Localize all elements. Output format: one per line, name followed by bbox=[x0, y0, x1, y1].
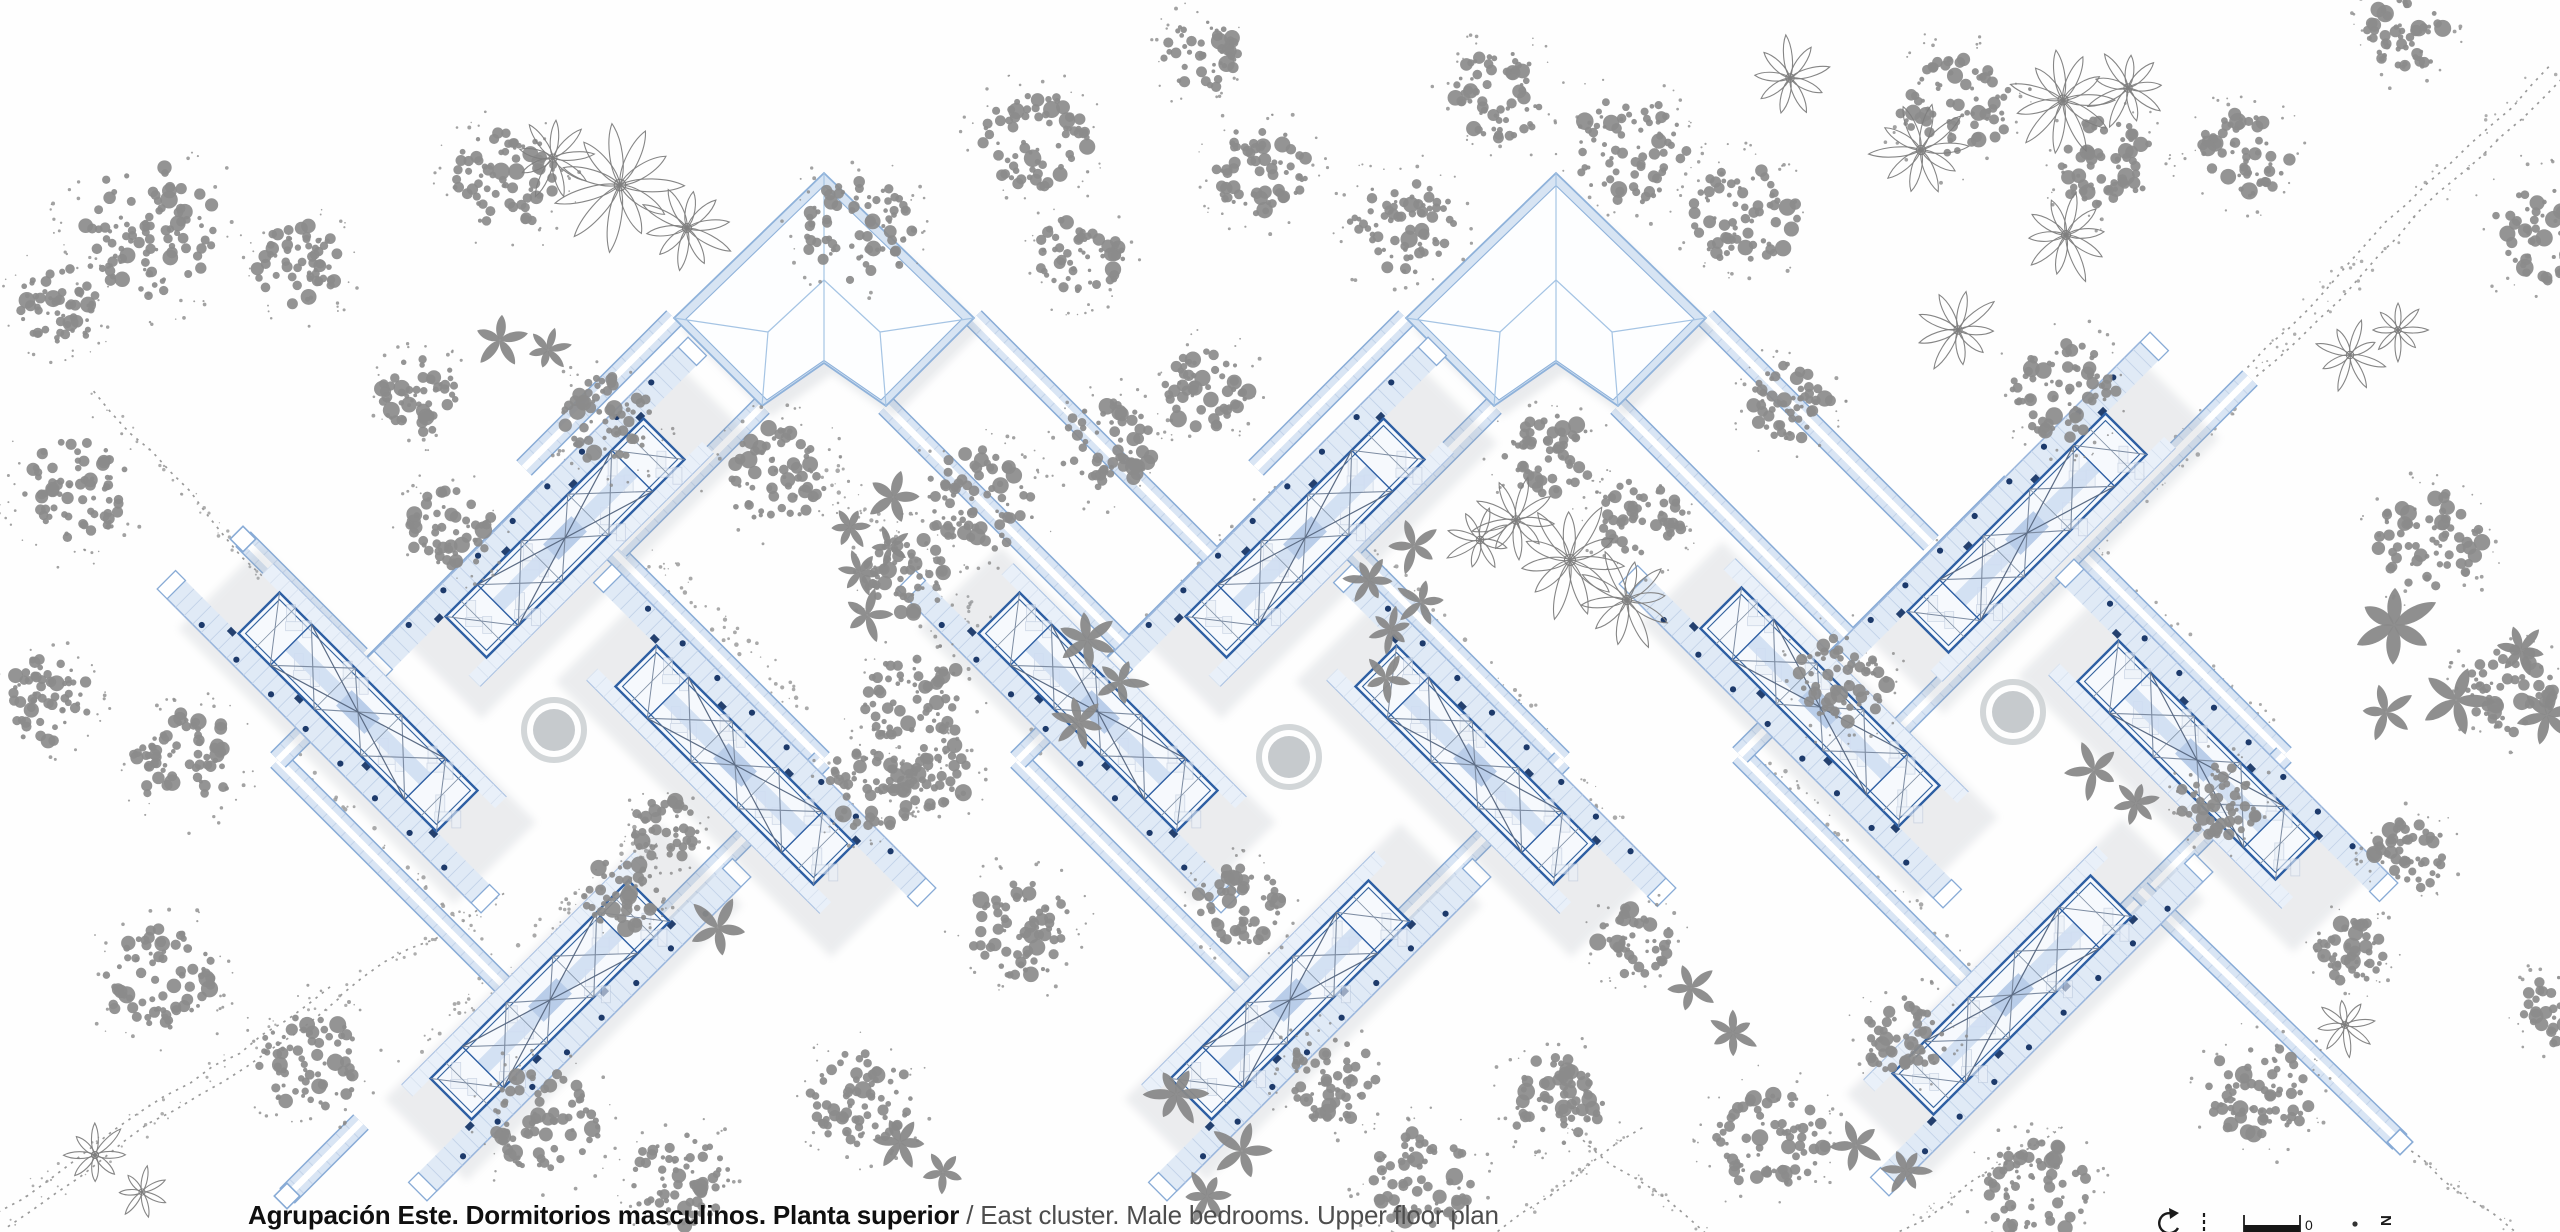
tree-canopy bbox=[121, 692, 256, 835]
tree-palm bbox=[2362, 683, 2414, 741]
tree-canopy bbox=[248, 209, 358, 328]
footpath bbox=[2248, 65, 2551, 368]
pavilion-roof bbox=[1406, 173, 1714, 417]
tree-canopy bbox=[1024, 195, 1141, 316]
tree-canopy bbox=[94, 908, 233, 1052]
tree-palm-outline bbox=[1755, 34, 1831, 114]
tree-canopy bbox=[944, 857, 1095, 997]
tree-palm bbox=[1829, 1119, 1883, 1172]
footpath bbox=[1498, 1127, 1643, 1231]
scale-zero-label: 0 bbox=[2305, 1217, 2313, 1232]
corridor bbox=[1706, 318, 1931, 543]
pavilion-roof bbox=[674, 173, 982, 417]
caption-english: East cluster. Male bedrooms. Upper floor… bbox=[980, 1200, 1498, 1230]
tree-palm-outline bbox=[2318, 1000, 2375, 1058]
tree-palm-outline bbox=[1918, 291, 1997, 371]
caption-spanish: Agrupación Este. Dormitorios masculinos.… bbox=[248, 1200, 959, 1230]
tree-canopy bbox=[2350, 0, 2462, 90]
courtyard-circle bbox=[1259, 727, 1319, 787]
tree-palm-outline bbox=[2009, 49, 2115, 153]
tree-canopy bbox=[2360, 472, 2500, 609]
tree-palm-outline bbox=[2373, 303, 2428, 362]
tree-canopy bbox=[882, 724, 987, 819]
tree-canopy bbox=[2475, 152, 2560, 300]
tree-canopy bbox=[2354, 802, 2460, 897]
tree-palm bbox=[1708, 1010, 1758, 1057]
scale-bar bbox=[2244, 1215, 2300, 1232]
tree-canopy bbox=[1150, 3, 1242, 103]
tree-palm bbox=[528, 327, 573, 370]
tree-canopy bbox=[2, 255, 109, 364]
corridor bbox=[287, 1122, 361, 1196]
site-plan-drawing: 0N bbox=[0, 0, 2560, 1232]
dormitory-core bbox=[1892, 873, 2145, 1126]
scale-dot bbox=[2352, 1221, 2357, 1226]
layer-buildings bbox=[148, 173, 2398, 1211]
plan-caption: Agrupación Este. Dormitorios masculinos.… bbox=[248, 1200, 1499, 1230]
tree-canopy bbox=[1966, 1122, 2109, 1232]
tree-palm bbox=[867, 469, 920, 523]
tree-canopy bbox=[2182, 96, 2307, 218]
tree-palm bbox=[845, 587, 893, 643]
tree-canopy bbox=[0, 641, 111, 761]
tree-canopy bbox=[1493, 1037, 1621, 1159]
footpath bbox=[1566, 1123, 1705, 1232]
tree-canopy bbox=[1157, 329, 1265, 438]
tree-canopy bbox=[2508, 964, 2560, 1058]
footpath bbox=[2398, 1142, 2515, 1231]
tree-palm bbox=[922, 1151, 964, 1194]
tree-canopy bbox=[959, 75, 1101, 211]
tree-palm bbox=[831, 508, 871, 549]
north-label: N bbox=[2378, 1215, 2395, 1226]
tree-palm-outline bbox=[119, 1165, 166, 1218]
tree-canopy bbox=[50, 152, 246, 326]
tree-palm-outline bbox=[2315, 319, 2387, 392]
courtyard-circle bbox=[1983, 682, 2043, 742]
tree-canopy bbox=[796, 1031, 931, 1170]
tree-palm bbox=[2354, 588, 2440, 665]
layer-scalebar: 0N bbox=[2159, 1208, 2395, 1232]
tree-canopy bbox=[1678, 142, 1804, 281]
tree-palm bbox=[475, 314, 529, 366]
tree-canopy bbox=[246, 984, 382, 1129]
courtyard-circle bbox=[524, 700, 584, 760]
tree-palm bbox=[1667, 964, 1716, 1012]
tree-canopy bbox=[372, 342, 463, 451]
tree-palm-outline bbox=[63, 1123, 125, 1181]
north-arrow-icon bbox=[2159, 1208, 2179, 1232]
tree-canopy bbox=[1333, 155, 1473, 292]
tree-canopy bbox=[1198, 113, 1329, 236]
caption-separator: / bbox=[959, 1200, 980, 1230]
tree-palm-outline bbox=[641, 187, 733, 271]
tree-canopy bbox=[392, 474, 510, 588]
tree-canopy bbox=[0, 416, 141, 569]
tree-canopy bbox=[1692, 1065, 1843, 1204]
site-plan-page: 0N Agrupación Este. Dormitorios masculin… bbox=[0, 0, 2560, 1232]
tree-canopy bbox=[1431, 33, 1565, 156]
tree-canopy bbox=[1483, 401, 1611, 510]
